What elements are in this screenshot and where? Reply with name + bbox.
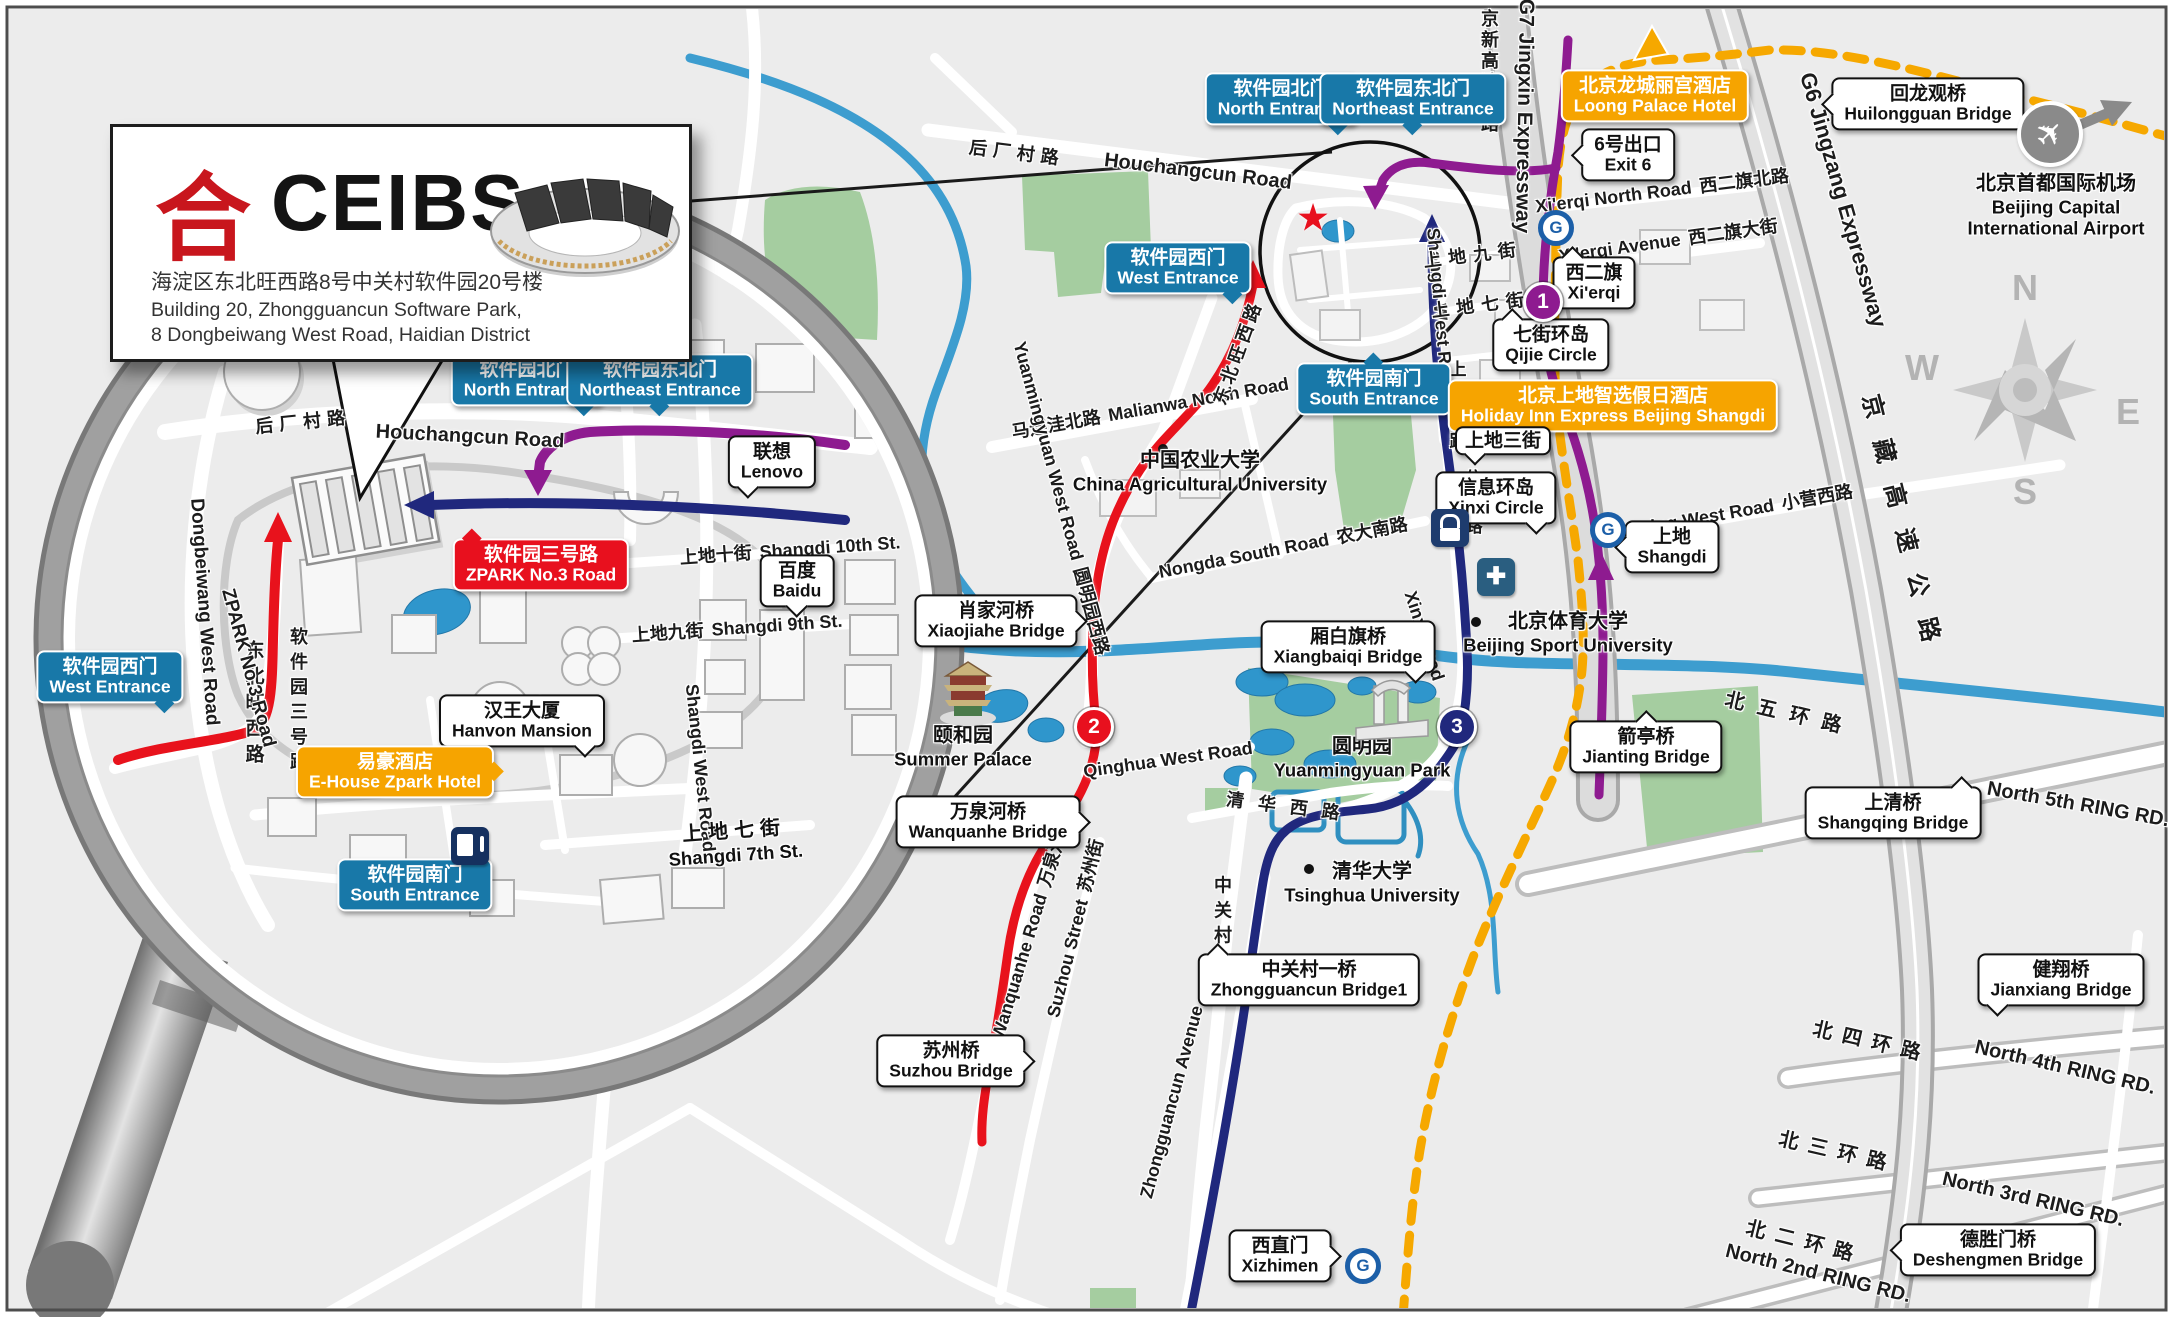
- route-marker-3: 3: [1437, 707, 1477, 747]
- ehouse-zpark-hotel-label: 易豪酒店E-House Zpark Hotel: [296, 745, 494, 798]
- summer-palace-pagoda-icon: [938, 660, 998, 726]
- mag-south-entrance-label: 软件园南门South Entrance: [337, 858, 492, 911]
- compass-south: S: [2013, 471, 2037, 513]
- airport-icon: ✈: [2017, 101, 2083, 167]
- gas-station-icon: [451, 827, 489, 865]
- ceibs-address: 海淀区东北旺西路8号中关村软件园20号楼 Building 20, Zhongg…: [151, 266, 543, 347]
- xiangbaiqi-bridge-label: 厢白旗桥Xiangbaiqi Bridge: [1261, 620, 1436, 673]
- route-marker-2: 2: [1074, 707, 1114, 747]
- subway-station-icon-shangdi: G: [1590, 512, 1626, 548]
- mag-west-entrance-label: 软件园西门West Entrance: [36, 650, 183, 703]
- g7-jingxin-expressway-label: G7 Jingxin Expressway: [1510, 0, 1538, 233]
- xiaojiahe-bridge-label: 肖家河桥Xiaojiahe Bridge: [914, 594, 1077, 647]
- exit6-label: 6号出口Exit 6: [1581, 128, 1675, 181]
- beijing-sport-university-label: 北京体育大学Beijing Sport University: [1463, 610, 1673, 655]
- loong-palace-hotel-label: 北京龙城丽宫酒店Loong Palace Hotel: [1561, 69, 1749, 122]
- mag-shangdi-7th-label: 上地七街Shangdi 7th St.: [666, 816, 803, 871]
- zpark-no3-road-sign: 软件园三号路ZPARK No.3 Road: [453, 538, 629, 591]
- shangdi-3rd-st-label: 上地三街: [1455, 426, 1551, 455]
- wanquanhe-bridge-label: 万泉河桥Wanquanhe Bridge: [896, 795, 1081, 848]
- jianting-bridge-label: 箭亭桥Jianting Bridge: [1569, 720, 1722, 773]
- ceibs-direction-map: 合 CEIBS 海淀区东北旺西路8号中关村软件园20号楼 Building 20…: [0, 0, 2173, 1317]
- lenovo-label: 联想Lenovo: [728, 435, 816, 488]
- hospital-icon: ✚: [1477, 558, 1515, 596]
- huilongguan-bridge-label: 回龙观桥Huilongguan Bridge: [1831, 77, 2024, 130]
- suzhou-bridge-label: 苏州桥Suzhou Bridge: [876, 1034, 1025, 1087]
- main-south-entrance-label: 软件园南门South Entrance: [1296, 362, 1451, 415]
- baidu-label: 百度Baidu: [760, 554, 835, 607]
- deshengmen-bridge-label: 德胜门桥Deshengmen Bridge: [1900, 1223, 2096, 1276]
- compass-north: N: [2012, 267, 2038, 309]
- ceibs-info-box: 合 CEIBS 海淀区东北旺西路8号中关村软件园20号楼 Building 20…: [110, 124, 692, 362]
- qijie-circle-label: 七街环岛Qijie Circle: [1492, 318, 1609, 371]
- china-agricultural-university-label: 中国农业大学China Agricultural University: [1073, 449, 1327, 494]
- main-west-entrance-label: 软件园西门West Entrance: [1104, 241, 1251, 294]
- ceibs-logo-icon: 合: [155, 141, 251, 280]
- compass-west: W: [1905, 347, 1939, 389]
- holiday-inn-express-label: 北京上地智选假日酒店Holiday Inn Express Beijing Sh…: [1448, 379, 1778, 432]
- subway-station-icon-xierqi: G: [1538, 210, 1574, 246]
- tsinghua-university-label: 清华大学Tsinghua University: [1284, 860, 1459, 905]
- padlock-landmark-icon: [1431, 509, 1469, 547]
- shangdi-station-label: 上地Shangdi: [1624, 520, 1719, 573]
- red-star-destination-icon: ★: [1296, 196, 1330, 241]
- jianxiang-bridge-label: 健翔桥Jianxiang Bridge: [1977, 953, 2144, 1006]
- summer-palace-label: 颐和园Summer Palace: [894, 724, 1032, 769]
- main-northeast-entrance-label: 软件园东北门Northeast Entrance: [1319, 72, 1506, 125]
- xizhimen-label: 西直门Xizhimen: [1229, 1229, 1332, 1282]
- route-marker-1: 1: [1523, 282, 1563, 322]
- subway-station-icon-xizhimen: G: [1345, 1248, 1381, 1284]
- yuanmingyuan-park-label: 圆明园Yuanmingyuan Park: [1274, 735, 1451, 780]
- hanvon-mansion-label: 汉王大厦Hanvon Mansion: [439, 694, 605, 747]
- zhongguancun-bridge1-label: 中关村一桥Zhongguancun Bridge1: [1198, 953, 1420, 1006]
- beijing-capital-airport-label: 北京首都国际机场Beijing CapitalInternational Air…: [1967, 172, 2144, 239]
- xierqi-label: 西二旗Xi'erqi: [1552, 256, 1635, 309]
- yuanmingyuan-ruins-icon: [1352, 678, 1432, 742]
- compass-east: E: [2116, 391, 2140, 433]
- shangqing-bridge-label: 上清桥Shangqing Bridge: [1805, 786, 1982, 839]
